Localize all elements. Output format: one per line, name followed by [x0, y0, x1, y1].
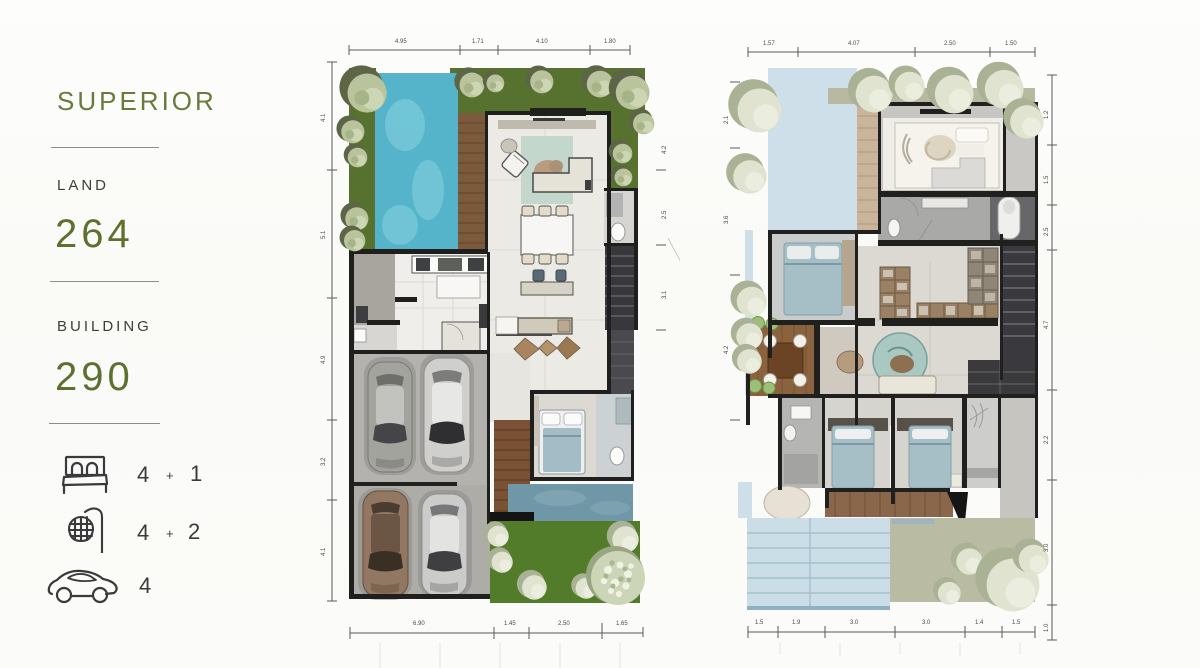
svg-text:1.65: 1.65	[616, 621, 628, 627]
svg-text:3.2: 3.2	[321, 457, 327, 466]
svg-text:5.1: 5.1	[321, 230, 327, 239]
svg-text:3.6: 3.6	[724, 215, 730, 224]
svg-text:2.5: 2.5	[1044, 227, 1050, 236]
svg-text:4.9: 4.9	[321, 355, 327, 364]
svg-text:1.45: 1.45	[504, 621, 516, 627]
svg-text:2.5: 2.5	[662, 210, 668, 219]
svg-text:2.50: 2.50	[558, 621, 570, 627]
svg-text:1.0: 1.0	[1044, 623, 1050, 632]
svg-text:2.2: 2.2	[1044, 435, 1050, 444]
svg-text:1.5: 1.5	[1012, 620, 1021, 626]
svg-text:4.07: 4.07	[848, 41, 860, 47]
svg-text:1.2: 1.2	[1044, 110, 1050, 119]
svg-text:3.1: 3.1	[662, 290, 668, 299]
svg-text:2.50: 2.50	[944, 41, 956, 47]
svg-text:1.4: 1.4	[975, 620, 984, 626]
svg-text:1.80: 1.80	[604, 39, 616, 45]
svg-text:4.1: 4.1	[321, 113, 327, 122]
svg-text:6.90: 6.90	[413, 621, 425, 627]
svg-text:1.5: 1.5	[1044, 175, 1050, 184]
svg-text:4.10: 4.10	[536, 39, 548, 45]
svg-text:3.0: 3.0	[922, 620, 931, 626]
svg-text:1.9: 1.9	[792, 620, 801, 626]
svg-text:4.2: 4.2	[724, 345, 730, 354]
svg-text:1.5: 1.5	[755, 620, 764, 626]
svg-text:1.57: 1.57	[763, 41, 775, 47]
svg-text:1.50: 1.50	[1005, 41, 1017, 47]
svg-text:2.1: 2.1	[724, 115, 730, 124]
svg-text:4.2: 4.2	[662, 145, 668, 154]
svg-text:4.1: 4.1	[321, 547, 327, 556]
svg-text:3.0: 3.0	[850, 620, 859, 626]
svg-text:1.71: 1.71	[472, 39, 484, 45]
svg-text:4.95: 4.95	[395, 39, 407, 45]
svg-text:3.0: 3.0	[1044, 543, 1050, 552]
svg-text:4.7: 4.7	[1044, 320, 1050, 329]
